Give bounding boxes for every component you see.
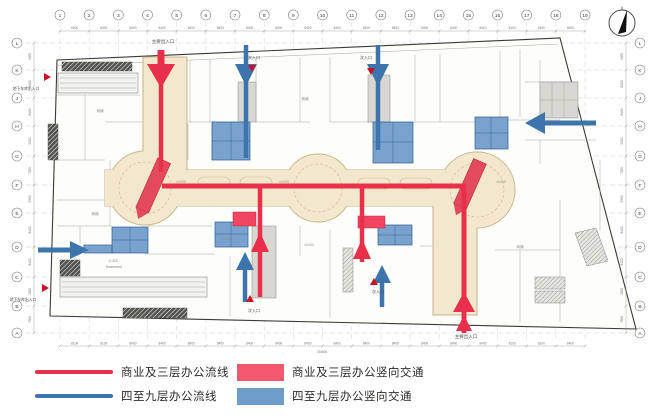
- room-label: 商铺: [517, 244, 525, 249]
- entrance-label: 主要出入口: [455, 333, 478, 340]
- dimension-label: 8400: [217, 26, 224, 30]
- dimension-label: 4500: [620, 288, 624, 295]
- dimension-label: 8400: [392, 342, 399, 346]
- grid-column-label: 4: [146, 13, 149, 19]
- dimension-label: 8400: [28, 258, 32, 265]
- legend-item-label: 商业及三层办公流线: [121, 364, 229, 380]
- entrance-label: 次入口: [248, 54, 260, 60]
- dimension-label: 8400: [334, 342, 341, 346]
- dimension-label: 5300: [620, 195, 624, 202]
- dimension-label: 5300: [28, 195, 32, 202]
- dimension-label: 8400: [28, 108, 32, 115]
- grid-row-label: H: [638, 124, 642, 130]
- dimension-label: 8400: [479, 342, 486, 346]
- dimension-label: 8400: [363, 342, 370, 346]
- grid-column-label: 14: [437, 13, 443, 19]
- dimension-label: 8400: [188, 26, 195, 30]
- legend-item-label: 四至九层办公流线: [121, 388, 217, 404]
- grid-column-label: 18: [553, 13, 559, 19]
- room-label: 商铺: [302, 96, 310, 101]
- dimension-label: 8400: [275, 342, 282, 346]
- legend-item: 商业及三层办公竖向交通: [237, 363, 424, 381]
- dimension-label: 8400: [304, 342, 311, 346]
- dimension-label: 5200: [620, 53, 624, 60]
- dimension-label: 5300: [28, 137, 32, 144]
- grid-row-label: E: [638, 211, 641, 217]
- dimension-label: 8400: [450, 26, 457, 30]
- dimension-label: 8400: [304, 26, 311, 30]
- dimension-label: 8400: [217, 342, 224, 346]
- dimension-label: 8100: [509, 342, 516, 346]
- grid-column-label: 5: [175, 13, 178, 19]
- dimension-label: 8400: [71, 26, 78, 30]
- dimension-label: 7500: [28, 167, 32, 174]
- dimension-label: 8400: [620, 226, 624, 233]
- dimension-label: 8400: [129, 26, 136, 30]
- dimension-label: 8400: [334, 26, 341, 30]
- dimension-label: 8400: [450, 342, 457, 346]
- grid-column-label: 12: [378, 13, 384, 19]
- grid-column-label: 3: [117, 13, 120, 19]
- legend-column-lines: 商业及三层办公流线四至九层办公流线: [35, 363, 229, 405]
- dimension-label: 8400: [421, 26, 428, 30]
- legend-line-swatch: [35, 370, 113, 374]
- dimension-label: 8400: [479, 26, 486, 30]
- room-label: -0.300: [108, 259, 118, 263]
- dimension-label: 4500: [28, 288, 32, 295]
- grid-column-label: 7: [234, 13, 237, 19]
- dimension-label: 7500: [620, 316, 624, 323]
- legend-item: 四至九层办公流线: [35, 387, 229, 405]
- level-label: ±0.000: [176, 180, 186, 184]
- entrance-label: 主要出入口: [152, 38, 175, 45]
- dimension-label: 8100: [538, 26, 545, 30]
- legend-line-swatch: [35, 394, 113, 398]
- dimension-label: 8400: [246, 26, 253, 30]
- grid-column-label: 15: [466, 13, 472, 19]
- grid-row-label: F: [639, 183, 642, 189]
- dimension-label: 8400: [159, 342, 166, 346]
- dimension-label: 7500: [620, 167, 624, 174]
- level-label: ±0.000: [496, 180, 506, 184]
- grid-row-label: L: [639, 41, 642, 47]
- legend: 商业及三层办公流线四至九层办公流线 商业及三层办公竖向交通四至九层办公竖向交通: [0, 363, 659, 419]
- red-core: [233, 212, 256, 226]
- grid-column-label: 8: [263, 13, 266, 19]
- legend-block-swatch: [237, 388, 284, 405]
- grid-column-label: 10: [320, 13, 326, 19]
- grid-row-label: F: [16, 183, 19, 189]
- room-label: 商铺: [97, 108, 104, 113]
- entrance-label: 地下车库出入口: [13, 86, 40, 91]
- dimension-total: 150800: [317, 350, 328, 354]
- grid-column-label: 13: [407, 13, 413, 19]
- grid-column-label: 2: [88, 13, 91, 19]
- dimension-label: 8400: [421, 342, 428, 346]
- dimension-label: 8400: [100, 26, 107, 30]
- dimension-label: 8100: [538, 342, 545, 346]
- level-label: ±0.000: [221, 237, 231, 241]
- room-label: 商铺: [92, 211, 99, 216]
- dimension-label: 8400: [188, 342, 195, 346]
- dimension-label: 8400: [275, 26, 282, 30]
- dimension-label: 8400: [620, 80, 624, 87]
- grid-row-label: L: [16, 41, 19, 47]
- dimension-label: 8400: [567, 26, 574, 30]
- dimension-label: 8100: [100, 342, 107, 346]
- dimension-label: 8400: [620, 258, 624, 265]
- grid-column-label: 16: [495, 13, 501, 19]
- dimension-label: 8400: [363, 26, 370, 30]
- grid-column-label: 17: [524, 13, 530, 19]
- entrance-label: 次入口: [372, 288, 384, 294]
- grid-row-label: B: [638, 304, 641, 310]
- dimension-label: 5200: [28, 53, 32, 60]
- grid-row-label: B: [15, 304, 18, 310]
- grid-column-label: 11: [349, 13, 354, 19]
- grid-row-label: C: [15, 275, 19, 281]
- dimension-label: 8400: [392, 26, 399, 30]
- grid-column-label: 19: [582, 13, 588, 19]
- dimension-label: 8400: [620, 108, 624, 115]
- level-label: ±0.000: [279, 180, 289, 184]
- dimension-label: 8400: [246, 342, 253, 346]
- grid-row-label: G: [638, 154, 642, 160]
- dimension-label: 7500: [28, 316, 32, 323]
- entrance-label: 次入口: [248, 307, 260, 313]
- grid-row-label: D: [638, 245, 642, 251]
- dimension-label: 8400: [129, 342, 136, 346]
- legend-column-blocks: 商业及三层办公竖向交通四至九层办公竖向交通: [237, 363, 424, 405]
- grid-row-label: D: [15, 245, 19, 251]
- dimension-label: 8100: [71, 342, 78, 346]
- legend-item-label: 四至九层办公竖向交通: [292, 388, 412, 404]
- dimension-label: 8400: [28, 226, 32, 233]
- blue-core: [84, 245, 112, 253]
- grid-row-label: H: [15, 124, 19, 130]
- grid-column-label: 9: [292, 13, 295, 19]
- grid-row-label: E: [15, 211, 18, 217]
- floor-plan-screenshot: 12345678910111213141516171819LLKKJJHHGGF…: [0, 0, 659, 419]
- entrance-label: 次入口: [360, 54, 372, 60]
- grid-column-label: 1: [59, 13, 62, 19]
- legend-block-swatch: [237, 364, 284, 381]
- grid-row-label: C: [638, 275, 642, 281]
- grid-column-label: 6: [205, 13, 208, 19]
- legend-item-label: 商业及三层办公竖向交通: [292, 364, 424, 380]
- entrance-label: 地下车库出入口: [10, 297, 37, 302]
- legend-item: 四至九层办公竖向交通: [237, 387, 424, 405]
- core-shaft: [252, 226, 276, 298]
- floor-plan-drawing: 12345678910111213141516171819LLKKJJHHGGF…: [0, 0, 659, 419]
- dimension-label: 5300: [620, 137, 624, 144]
- dimension-label: 8100: [509, 26, 516, 30]
- room-label: Basement: [106, 265, 122, 269]
- level-label: ±0.000: [304, 243, 314, 247]
- legend-item: 商业及三层办公流线: [35, 363, 229, 381]
- dimension-label: 8400: [567, 342, 574, 346]
- grid-row-label: G: [15, 154, 19, 160]
- dimension-label: 8400: [159, 26, 166, 30]
